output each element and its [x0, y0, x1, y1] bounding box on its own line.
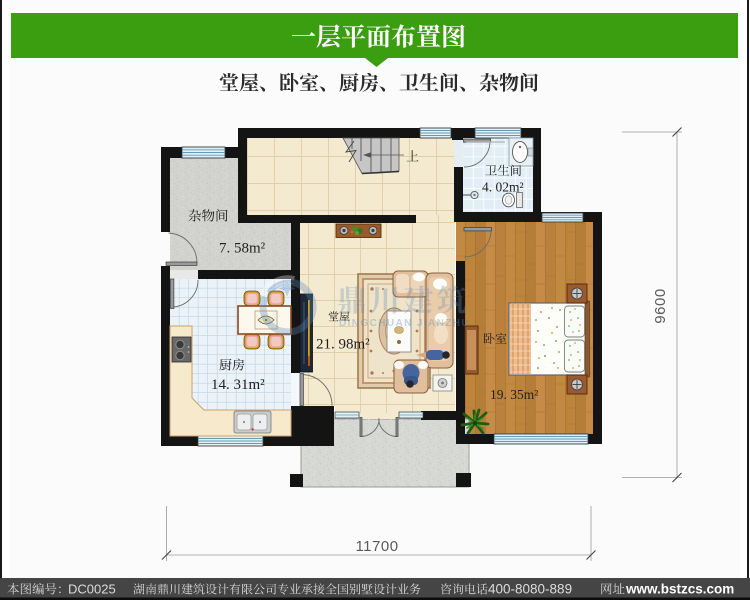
- svg-text:4. 02m²: 4. 02m²: [482, 180, 524, 195]
- svg-text:400-8080-889: 400-8080-889: [488, 582, 572, 597]
- svg-text:11700: 11700: [355, 538, 398, 555]
- svg-text:DC0025: DC0025: [68, 582, 116, 597]
- svg-text:9600: 9600: [652, 288, 669, 323]
- svg-text:DINGCHUAN JIANZHU: DINGCHUAN JIANZHU: [339, 318, 470, 329]
- svg-text:14. 31m²: 14. 31m²: [211, 377, 265, 393]
- svg-text:19. 35m²: 19. 35m²: [490, 387, 538, 402]
- svg-text:www.bstzcs.com: www.bstzcs.com: [625, 582, 734, 597]
- svg-text:7. 58m²: 7. 58m²: [219, 241, 266, 257]
- svg-text:21. 98m²: 21. 98m²: [316, 337, 370, 353]
